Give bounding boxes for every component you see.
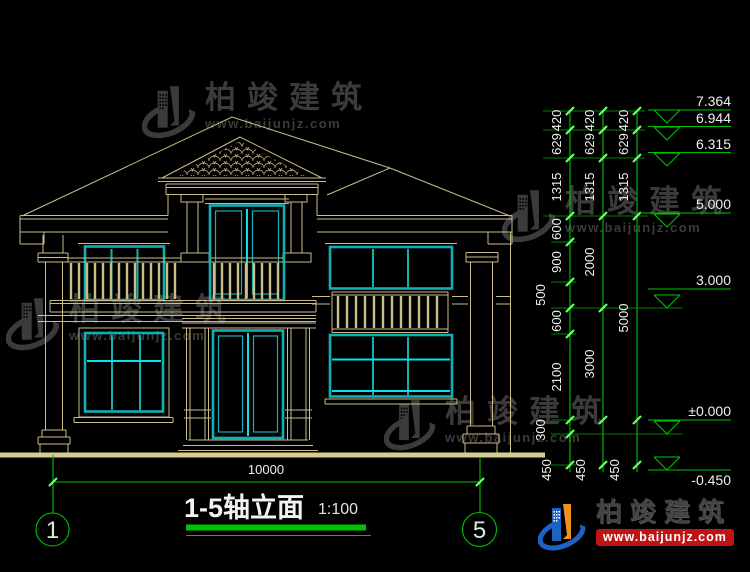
drawing-scale: 1:100: [318, 501, 358, 518]
dim-label: 3000: [582, 350, 597, 379]
balcony-slab: [50, 301, 316, 313]
dim-label: 629: [549, 133, 564, 155]
dim-label: 420: [549, 110, 564, 132]
title-block: 1-5轴立面 1:100: [184, 492, 371, 536]
balcony-top-rail: [67, 258, 283, 262]
level-label: 6.944: [696, 110, 731, 126]
brand-logo-text: 柏竣建筑: [596, 499, 734, 526]
axis-number-left: 1: [46, 517, 59, 544]
right-eave-band: [317, 216, 512, 245]
dim-label: 1315: [616, 173, 631, 202]
brand-logo: 柏竣建筑 www.baijunjz.com: [538, 499, 734, 555]
brand-logo-icon: [538, 499, 588, 555]
first-floor-right-window: [325, 335, 457, 404]
dim-label: 1315: [549, 173, 564, 202]
dim-label: 2000: [582, 248, 597, 277]
dim-label: 600: [549, 218, 564, 240]
dim-label: 600: [549, 310, 564, 332]
dim-label: 2100: [549, 363, 564, 392]
tower-roof-tiles: [174, 141, 306, 176]
door-lintel: [182, 319, 316, 329]
tower-column-right: [283, 195, 311, 263]
roof-hip-edge: [327, 168, 390, 195]
tower-column-left: [181, 195, 209, 263]
second-floor-right-window: [330, 247, 452, 289]
balcony-balusters: [71, 263, 278, 299]
second-floor-left-window: [78, 244, 170, 301]
dim-chain-lines: [570, 111, 637, 472]
house-elevation: [0, 117, 545, 458]
tower-fascia: [166, 184, 318, 195]
left-pilaster: [38, 235, 70, 453]
dim-label: 629: [616, 133, 631, 155]
cad-canvas: 柏竣建筑 www.baijunjz.com 柏竣建筑 www.baijunjz.…: [0, 0, 750, 572]
dim-label: 500: [533, 284, 548, 306]
drawing-title: 1-5轴立面: [184, 492, 304, 523]
dim-extension-lines: [543, 111, 683, 465]
dim-label: 5000: [616, 304, 631, 333]
dim-label: 900: [549, 251, 564, 273]
dim-label: 420: [616, 110, 631, 132]
elevation-drawing: 1 5 10000 420 629 1315 600 900 500 600 2…: [0, 0, 750, 572]
entrance-steps: [178, 440, 318, 451]
level-label: 7.364: [696, 93, 731, 109]
level-label: -0.450: [691, 472, 731, 488]
dim-label: 300: [533, 419, 548, 441]
total-width-dim: 10000: [248, 462, 284, 477]
dim-label: 450: [539, 459, 554, 481]
title-underline-bar: [186, 525, 366, 531]
right-pilaster: [463, 253, 499, 453]
level-label: ±0.000: [688, 403, 731, 419]
level-label: 3.000: [696, 272, 731, 288]
tower-eave: [158, 178, 326, 182]
axis-number-right: 5: [473, 517, 486, 544]
entrance-door: [213, 331, 283, 439]
ground-line: [0, 453, 545, 458]
brand-logo-url: www.baijunjz.com: [596, 529, 734, 546]
dim-label: 1315: [582, 173, 597, 202]
louver-slats: [338, 296, 437, 328]
level-label: 5.000: [696, 196, 731, 212]
first-floor-left-window: [74, 328, 173, 423]
left-eave-band: [20, 216, 168, 245]
dim-label: 450: [607, 459, 622, 481]
dim-label: 450: [573, 459, 588, 481]
balcony-door-header: [205, 199, 289, 204]
dim-label: 629: [582, 133, 597, 155]
level-label: 6.315: [696, 136, 731, 152]
louver-panel-frame: [332, 292, 448, 333]
dim-label: 420: [582, 110, 597, 132]
